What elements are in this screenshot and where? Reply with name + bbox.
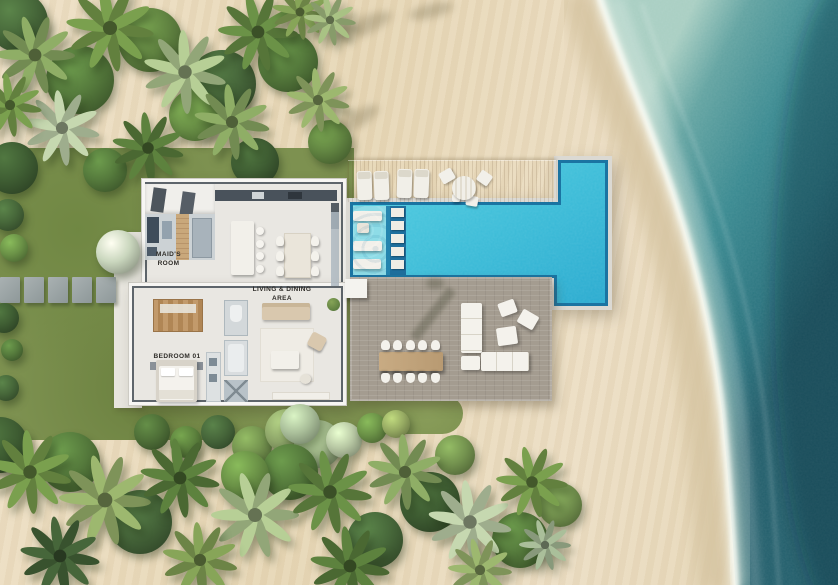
palm-tree	[140, 438, 220, 518]
bedroom-label-line1: BEDROOM 01	[148, 352, 206, 361]
bar-stool	[256, 240, 264, 248]
palm-tree	[310, 526, 390, 585]
bush	[0, 375, 19, 401]
indoor-dining-chair	[276, 266, 284, 276]
vegetation-layer-front	[0, 0, 838, 585]
palm-tree	[519, 519, 571, 571]
bar-stool	[256, 227, 264, 235]
bar-stool	[256, 252, 264, 260]
indoor-dining-chair	[311, 266, 319, 276]
bush	[1, 339, 23, 361]
maids-room-label: MAID'S ROOM	[141, 250, 196, 269]
living-dining-label-line1: LIVING & DINING	[246, 285, 318, 294]
bush	[0, 234, 28, 262]
aerial-render-canvas: MAID'S ROOM LIVING & DINING AREA BEDROOM…	[0, 0, 838, 585]
palm-tree	[288, 450, 372, 534]
bush	[0, 303, 19, 333]
maids-room-label-line1: MAID'S	[141, 250, 196, 259]
maids-room-label-line2: ROOM	[141, 259, 196, 268]
bush	[0, 199, 24, 231]
bush	[96, 230, 140, 274]
bedroom-label: BEDROOM 01	[148, 352, 206, 361]
indoor-dining-chair	[276, 236, 284, 246]
indoor-dining-chair	[311, 251, 319, 261]
living-dining-label-line2: AREA	[246, 294, 318, 303]
palm-tree	[496, 446, 568, 518]
palm-tree	[162, 522, 238, 585]
bush	[280, 404, 320, 444]
indoor-dining-chair	[276, 251, 284, 261]
palm-tree	[448, 538, 512, 585]
bar-stool	[256, 265, 264, 273]
palm-tree	[20, 516, 100, 585]
indoor-dining-chair	[311, 236, 319, 246]
living-dining-label: LIVING & DINING AREA	[246, 285, 318, 304]
